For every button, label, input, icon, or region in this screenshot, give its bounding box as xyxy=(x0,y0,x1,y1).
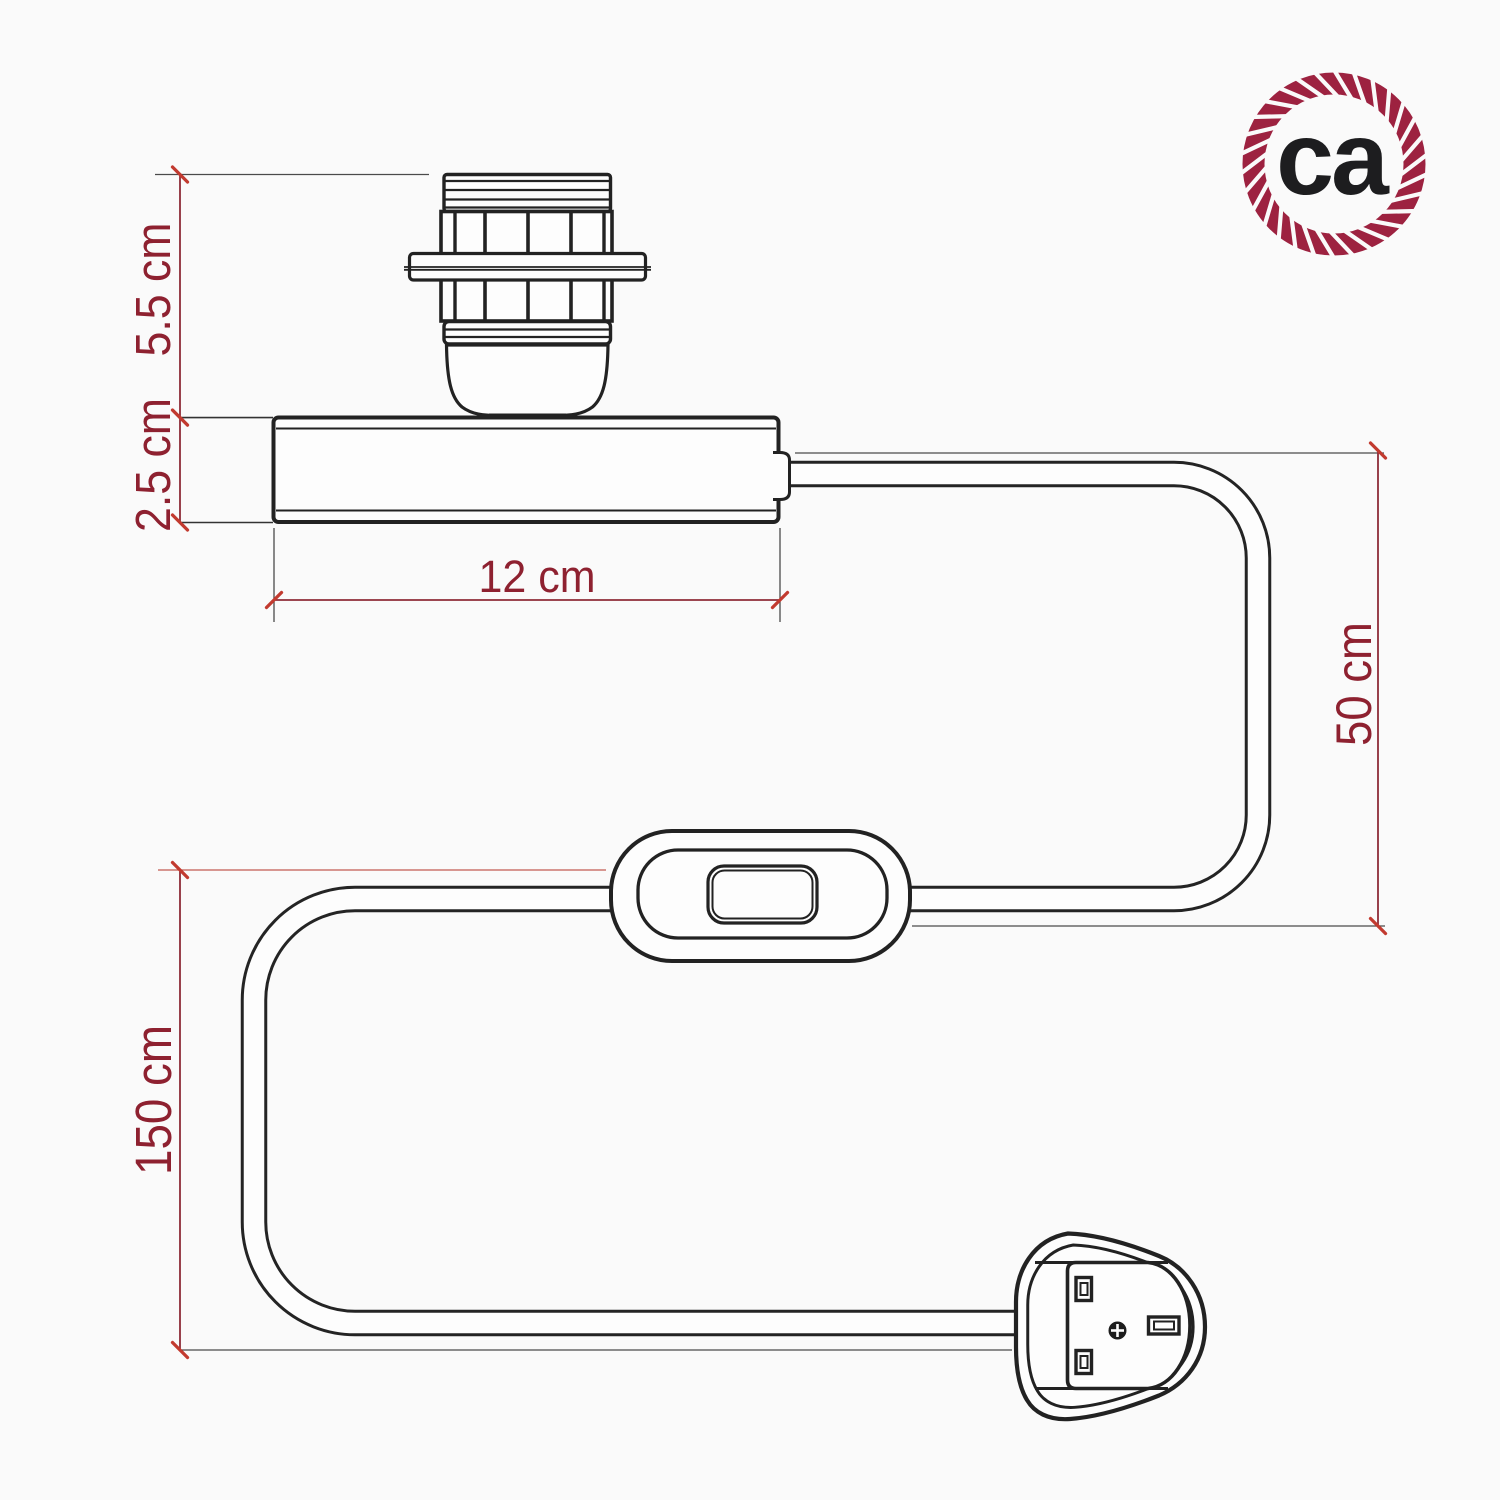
svg-text:5.5 cm: 5.5 cm xyxy=(127,223,181,357)
svg-text:150 cm: 150 cm xyxy=(125,1025,182,1175)
svg-text:2.5 cm: 2.5 cm xyxy=(127,398,181,532)
svg-text:50 cm: 50 cm xyxy=(1326,622,1382,746)
svg-text:12 cm: 12 cm xyxy=(479,551,596,602)
svg-text:ca: ca xyxy=(1276,101,1390,217)
